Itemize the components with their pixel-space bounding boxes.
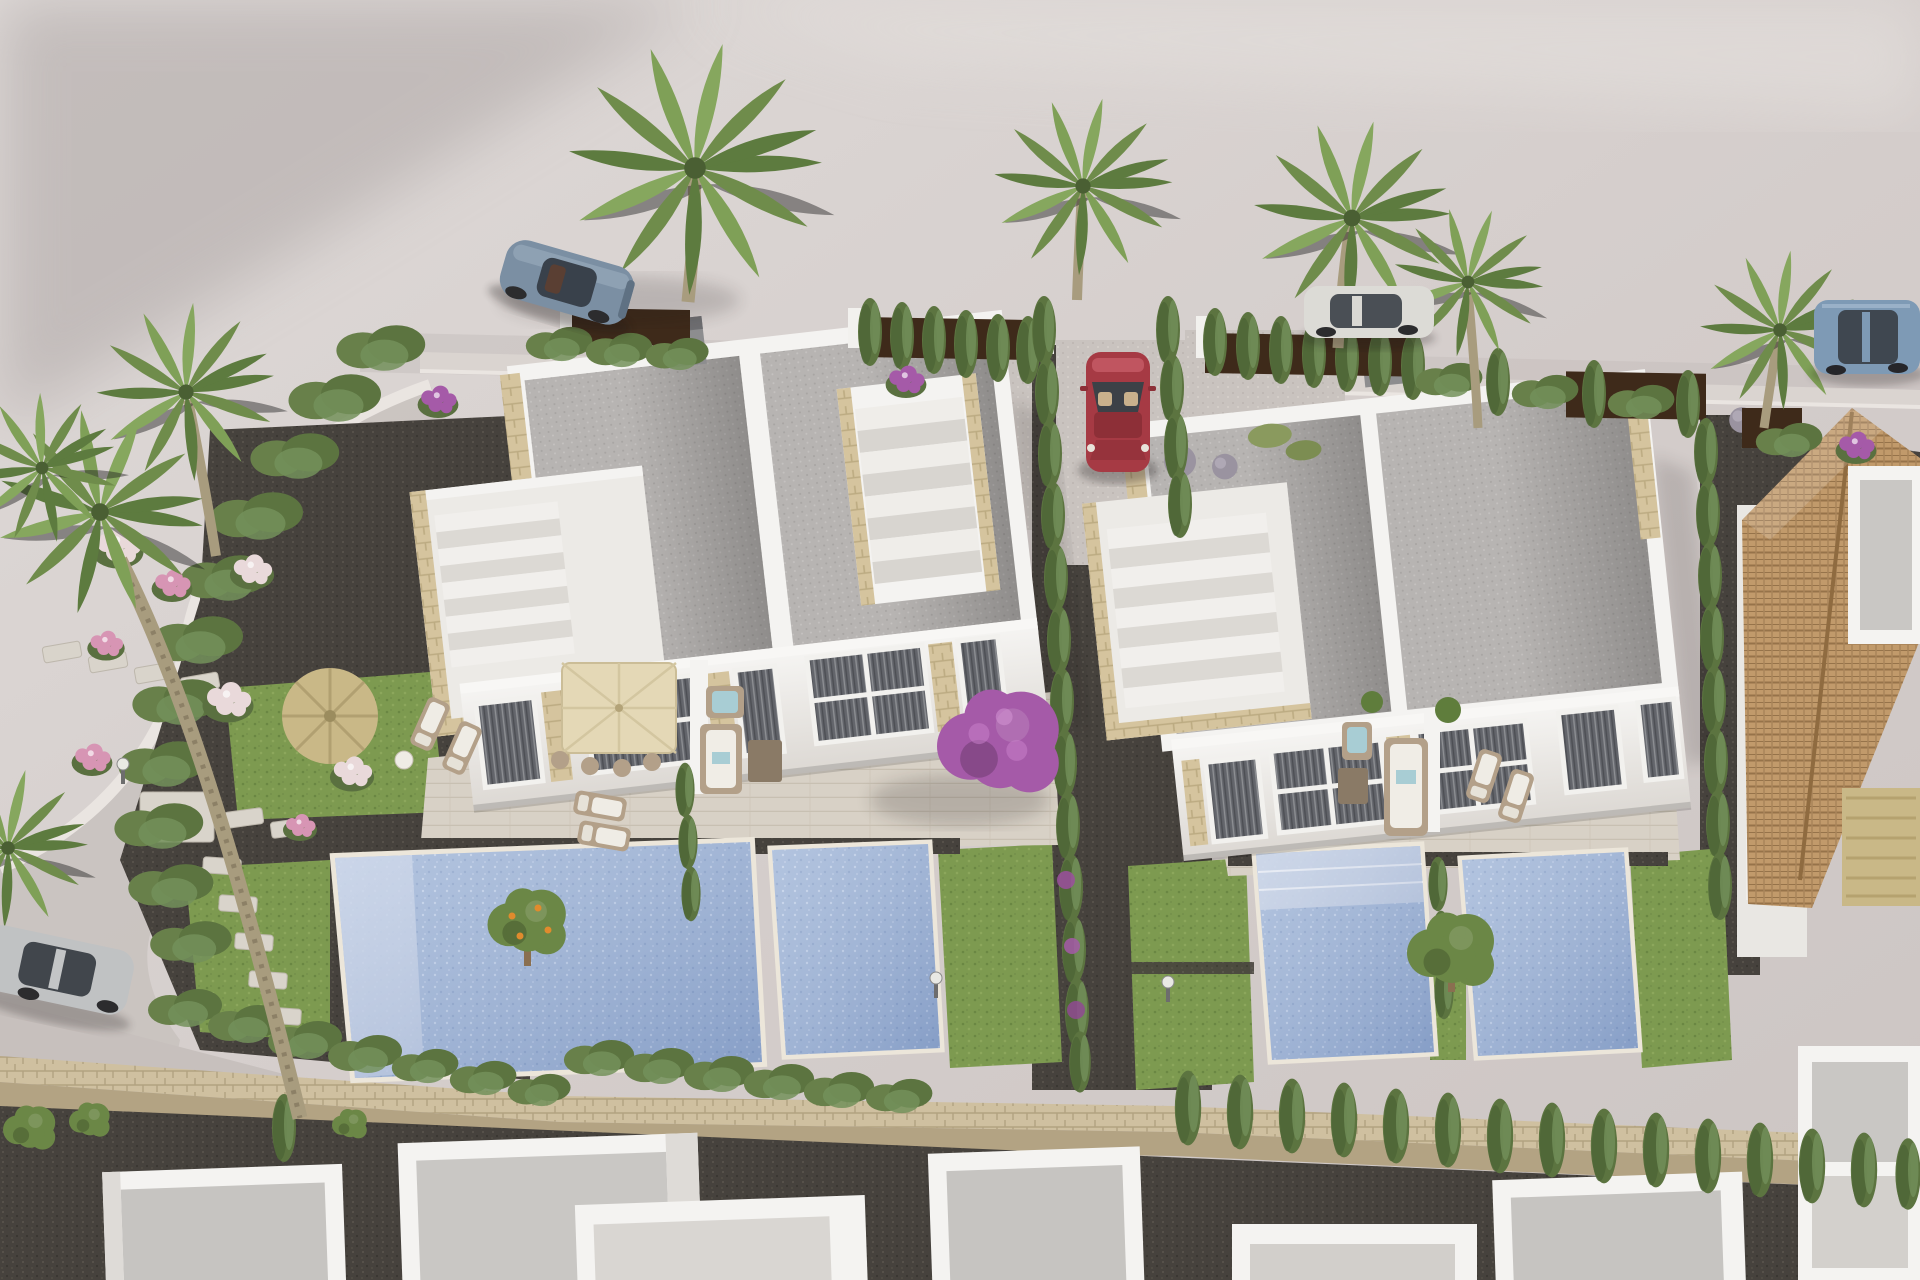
side-table	[395, 751, 413, 769]
left-villa-roof-stairs	[434, 501, 575, 667]
house-b4	[1232, 1224, 1477, 1280]
window	[476, 697, 543, 787]
red-car	[1078, 352, 1158, 484]
house-b1	[102, 1164, 347, 1280]
aerial-render	[0, 0, 1920, 1280]
window	[1206, 757, 1266, 842]
left-villa-side-stairs	[837, 373, 1001, 605]
lounge-chair	[1342, 722, 1372, 760]
potted-plant	[1361, 691, 1383, 713]
straw-pergola	[1842, 788, 1920, 906]
render-canvas	[0, 0, 1920, 1280]
white-sedan	[1300, 286, 1436, 350]
lawn-right-of-pool-b	[938, 844, 1062, 1068]
palapa-umbrella	[282, 668, 378, 764]
blue-suv	[1810, 300, 1920, 386]
house-b3	[928, 1146, 1145, 1280]
window	[1638, 699, 1682, 780]
window	[1558, 707, 1624, 793]
tiled-house-roof-terrace	[1848, 466, 1920, 644]
beige-parasol	[562, 663, 676, 753]
potted-plant	[1435, 697, 1461, 723]
white-sofa	[1384, 738, 1428, 836]
pool-b	[772, 844, 940, 1055]
side-table	[748, 740, 782, 782]
coffee-table	[1338, 768, 1368, 804]
right-villa-roof-stairs	[1082, 482, 1312, 740]
